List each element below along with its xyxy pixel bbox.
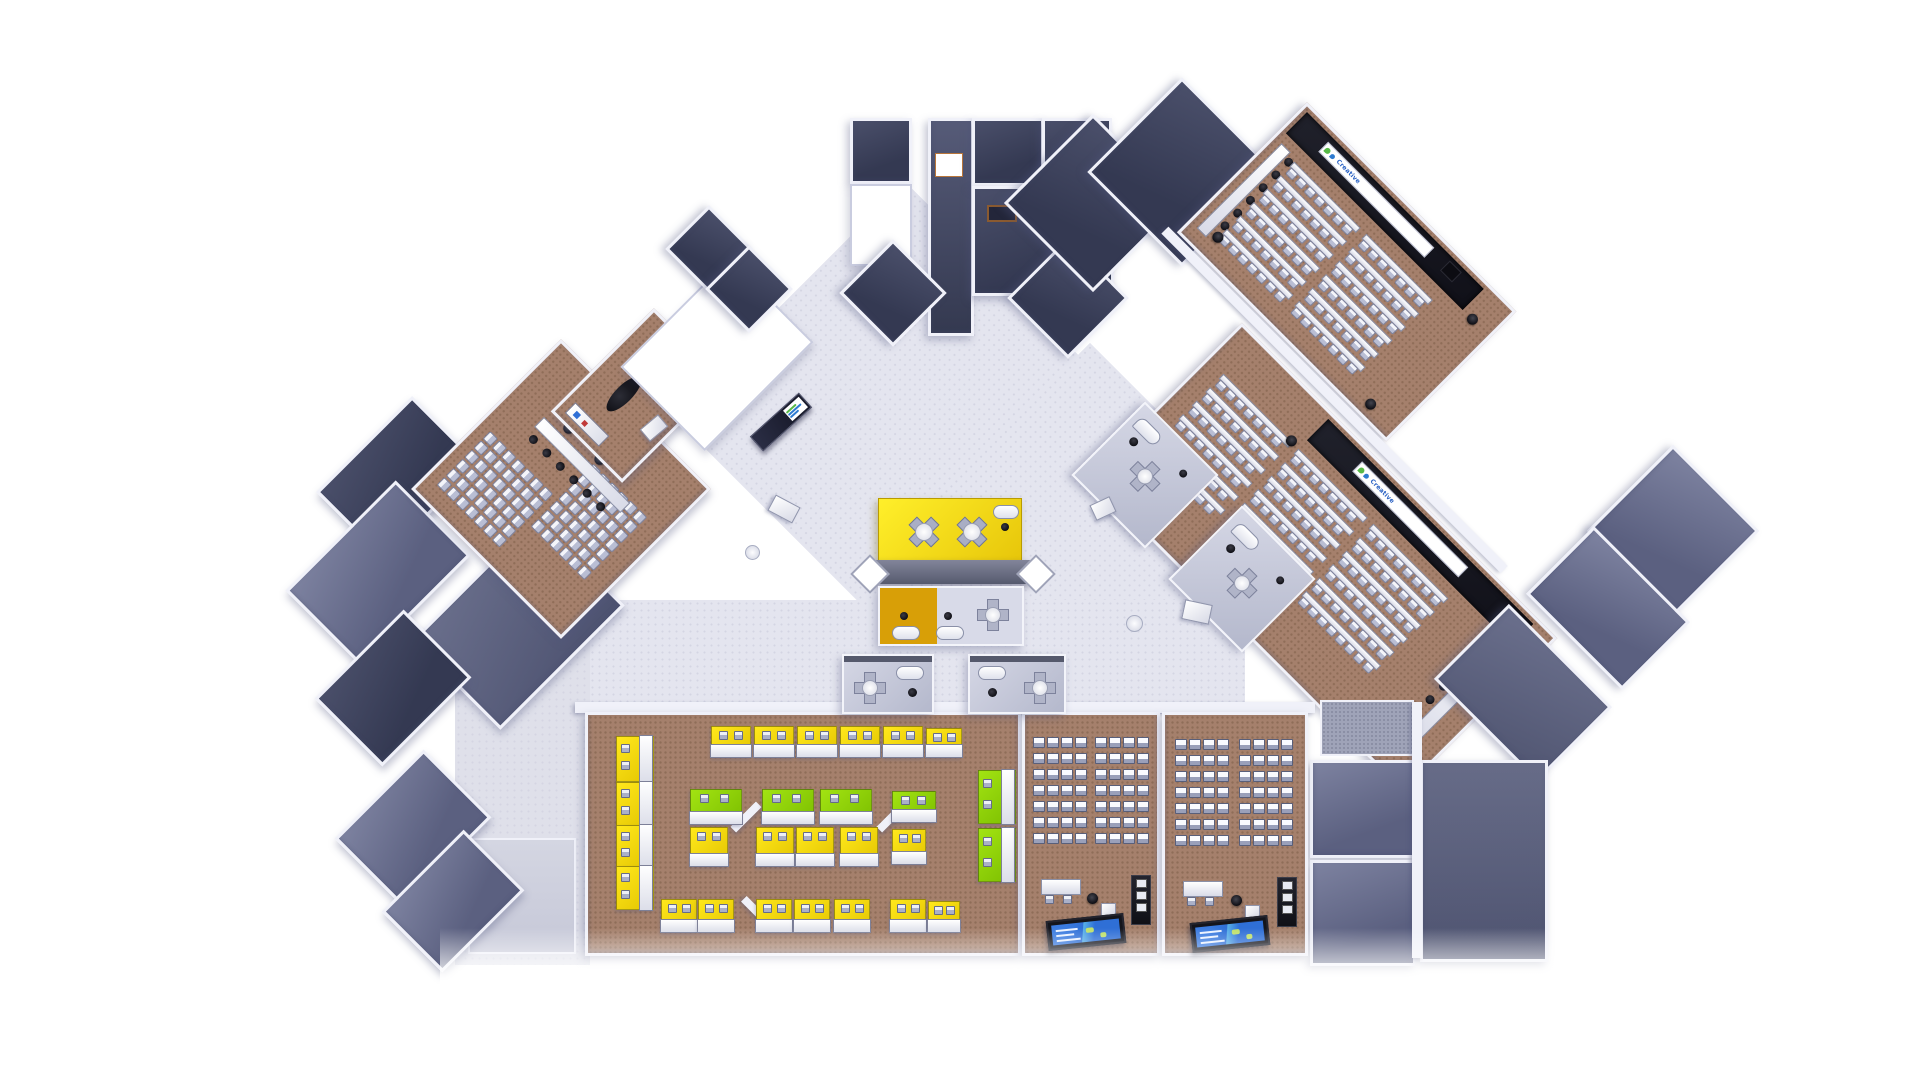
- desk: [639, 824, 653, 868]
- chair: [621, 848, 630, 857]
- student-desk: [1203, 739, 1215, 750]
- chair: [818, 832, 827, 841]
- chair: [777, 904, 786, 913]
- chair: [803, 832, 812, 841]
- chair: [540, 447, 553, 460]
- desk: [925, 744, 963, 758]
- stool: [944, 612, 952, 620]
- student-desk: [1061, 737, 1073, 748]
- student-desk: [1175, 835, 1187, 846]
- student-desk: [1033, 801, 1045, 812]
- student-desk: [1217, 787, 1229, 798]
- student-desk: [1075, 801, 1087, 812]
- class2-teacher-desk: [1183, 881, 1223, 897]
- class2-cabinet: [1277, 877, 1297, 927]
- student-desk: [1109, 737, 1121, 748]
- chair: [830, 794, 839, 803]
- desk: [639, 781, 653, 827]
- student-desk: [1123, 801, 1135, 812]
- student-desk: [1109, 817, 1121, 828]
- student-desk: [1189, 771, 1201, 782]
- br-core-corridor-wall: [1412, 702, 1422, 958]
- student-desk: [1253, 755, 1265, 766]
- student-desk: [1267, 803, 1279, 814]
- desk: [753, 744, 795, 758]
- pod-bench: [936, 626, 964, 640]
- chair: [763, 832, 772, 841]
- student-desk: [1095, 785, 1107, 796]
- student-desk: [1095, 737, 1107, 748]
- floor-spot: [1126, 615, 1143, 632]
- student-desk: [1075, 785, 1087, 796]
- student-desk: [1047, 769, 1059, 780]
- student-desk: [1109, 753, 1121, 764]
- student-desk: [1281, 771, 1293, 782]
- chair: [792, 794, 801, 803]
- x-table: [953, 513, 989, 549]
- chair: [772, 794, 781, 803]
- plus-table: [1022, 670, 1056, 704]
- class1-cabinet: [1131, 875, 1151, 925]
- counter-item-blue: [573, 411, 581, 419]
- chair: [983, 779, 992, 788]
- br-core-room-1: [1310, 760, 1416, 858]
- chair: [1205, 897, 1214, 906]
- yellow-desk-mat: [754, 726, 794, 758]
- student-desk: [1189, 739, 1201, 750]
- chair: [947, 733, 956, 742]
- student-desk: [1203, 803, 1215, 814]
- student-desk: [1047, 801, 1059, 812]
- chair: [820, 731, 829, 740]
- student-desk: [1267, 755, 1279, 766]
- green-desk-mat: [820, 789, 872, 825]
- student-desk: [1175, 787, 1187, 798]
- student-desk: [1047, 753, 1059, 764]
- student-desk: [1203, 819, 1215, 830]
- student-desk: [1123, 737, 1135, 748]
- chair: [801, 904, 810, 913]
- student-desk: [1095, 753, 1107, 764]
- pod-bench: [892, 626, 920, 640]
- canopy-bench: [993, 505, 1019, 519]
- stool: [900, 612, 908, 620]
- chair: [848, 731, 857, 740]
- chair: [912, 834, 921, 843]
- chair: [682, 904, 691, 913]
- plus-table: [1217, 556, 1268, 607]
- student-desk: [1075, 817, 1087, 828]
- yellow-desk-mat: [797, 726, 837, 758]
- student-desk: [1137, 737, 1149, 748]
- chair: [1187, 897, 1196, 906]
- desk: [839, 744, 881, 758]
- student-desk: [1175, 803, 1187, 814]
- chair: [719, 904, 728, 913]
- student-desk: [1175, 771, 1187, 782]
- student-desk: [1061, 817, 1073, 828]
- student-desk: [1203, 755, 1215, 766]
- plus-table: [852, 670, 886, 704]
- stool: [908, 688, 917, 697]
- desk: [882, 744, 924, 758]
- chair: [621, 789, 630, 798]
- chair: [705, 904, 714, 913]
- yellow-desk-mat: [883, 726, 923, 758]
- student-desk: [1267, 739, 1279, 750]
- student-desk: [1033, 753, 1045, 764]
- chair: [527, 433, 540, 446]
- chair: [841, 904, 850, 913]
- student-desk: [1095, 769, 1107, 780]
- student-desk: [1189, 819, 1201, 830]
- student-desk: [1203, 835, 1215, 846]
- student-desk: [1047, 785, 1059, 796]
- chair: [850, 794, 859, 803]
- student-desk: [1061, 769, 1073, 780]
- student-desk: [1075, 833, 1087, 844]
- student-desk: [1109, 785, 1121, 796]
- student-desk: [1123, 769, 1135, 780]
- student-desk: [1109, 833, 1121, 844]
- chair: [763, 904, 772, 913]
- student-desk: [1137, 769, 1149, 780]
- student-desk: [1253, 739, 1265, 750]
- student-desk: [1239, 771, 1251, 782]
- student-desk: [1239, 819, 1251, 830]
- desk: [891, 851, 927, 865]
- chair: [815, 904, 824, 913]
- student-desk: [1047, 737, 1059, 748]
- desk: [1001, 827, 1015, 883]
- yellow-desk-mat: [756, 827, 794, 867]
- green-desk-mat: [978, 828, 1016, 882]
- chair: [906, 731, 915, 740]
- student-desk: [1281, 787, 1293, 798]
- chair: [700, 794, 709, 803]
- student-desk: [1253, 803, 1265, 814]
- br-core-texture: [1320, 700, 1414, 756]
- student-desk: [1123, 753, 1135, 764]
- student-desk: [1123, 785, 1135, 796]
- student-desk: [1267, 835, 1279, 846]
- green-desk-mat: [892, 791, 936, 823]
- desk: [639, 735, 653, 783]
- student-desk: [1239, 755, 1251, 766]
- student-desk: [1047, 817, 1059, 828]
- study-room: [585, 712, 1021, 956]
- student-desk: [1281, 803, 1293, 814]
- floor-spot: [745, 545, 760, 560]
- chair: [621, 806, 630, 815]
- chair: [554, 460, 567, 473]
- chair: [697, 832, 706, 841]
- class1-teacher-desk: [1041, 879, 1081, 895]
- desk: [689, 811, 743, 825]
- student-desk: [1189, 803, 1201, 814]
- chair: [1045, 895, 1054, 904]
- group-pod-b: [968, 654, 1066, 714]
- floorplan-rendering: Creative Creative: [0, 0, 1920, 1080]
- student-desk: [1033, 737, 1045, 748]
- yellow-desk-mat: [711, 726, 751, 758]
- student-desk: [1217, 771, 1229, 782]
- desk: [761, 811, 815, 825]
- student-desk: [1281, 819, 1293, 830]
- yellow-desk-mat: [616, 825, 654, 867]
- student-desk: [1253, 835, 1265, 846]
- counter-item-red: [581, 420, 588, 427]
- student-desk: [1253, 787, 1265, 798]
- stool: [1127, 435, 1140, 448]
- student-desk: [1217, 739, 1229, 750]
- chair: [911, 904, 920, 913]
- chair: [668, 904, 677, 913]
- student-desk: [1123, 817, 1135, 828]
- chair: [805, 731, 814, 740]
- plus-table: [974, 596, 1010, 632]
- chair: [762, 731, 771, 740]
- student-desk: [1095, 817, 1107, 828]
- student-desk: [1061, 801, 1073, 812]
- chair: [719, 731, 728, 740]
- desk: [819, 811, 873, 825]
- yellow-desk-mat: [892, 829, 926, 865]
- chair: [862, 832, 871, 841]
- student-desk: [1137, 817, 1149, 828]
- student-desk: [1109, 801, 1121, 812]
- chair: [734, 731, 743, 740]
- x-table: [905, 513, 941, 549]
- chair: [983, 837, 992, 846]
- chair: [855, 904, 864, 913]
- yellow-desk-mat: [840, 726, 880, 758]
- student-desk: [1061, 753, 1073, 764]
- chair: [621, 873, 630, 882]
- chair: [712, 832, 721, 841]
- chair: [917, 796, 926, 805]
- stool: [988, 688, 997, 697]
- student-desk: [1095, 833, 1107, 844]
- student-desk: [1033, 833, 1045, 844]
- yellow-desk-mat: [616, 736, 654, 782]
- chair: [778, 832, 787, 841]
- student-desk: [1175, 819, 1187, 830]
- chair: [847, 832, 856, 841]
- student-desk: [1239, 835, 1251, 846]
- student-desk: [1033, 769, 1045, 780]
- chair: [621, 890, 630, 899]
- chair: [933, 733, 942, 742]
- desk: [795, 853, 835, 867]
- student-desk: [1033, 785, 1045, 796]
- student-desk: [1203, 787, 1215, 798]
- corridor-skylight: [935, 153, 963, 177]
- student-desk: [1175, 755, 1187, 766]
- student-desk: [1217, 755, 1229, 766]
- group-pod-a: [842, 654, 934, 714]
- student-desk: [1217, 819, 1229, 830]
- student-desk: [1137, 801, 1149, 812]
- student-desk: [1217, 803, 1229, 814]
- yellow-desk-mat: [616, 782, 654, 826]
- student-desk: [1095, 801, 1107, 812]
- green-desk-mat: [762, 789, 814, 825]
- stool: [1178, 468, 1189, 479]
- green-desk-mat: [978, 770, 1016, 824]
- student-desk: [1253, 771, 1265, 782]
- canopy-beam: [872, 560, 1032, 584]
- chair: [901, 796, 910, 805]
- student-desk: [1137, 833, 1149, 844]
- chair: [720, 794, 729, 803]
- core-room-1: [850, 118, 912, 184]
- student-desk: [1175, 739, 1187, 750]
- student-desk: [1109, 769, 1121, 780]
- desk: [689, 853, 729, 867]
- plus-table: [1120, 450, 1171, 501]
- student-desk: [1267, 787, 1279, 798]
- green-desk-mat: [690, 789, 742, 825]
- student-desk: [1033, 817, 1045, 828]
- stool: [1275, 575, 1286, 586]
- chair: [934, 906, 943, 915]
- student-desk: [1203, 771, 1215, 782]
- chair: [983, 858, 992, 867]
- student-desk: [1123, 833, 1135, 844]
- desk: [839, 853, 879, 867]
- student-desk: [1239, 787, 1251, 798]
- chair: [621, 744, 630, 753]
- student-desk: [1075, 737, 1087, 748]
- student-desk: [1061, 833, 1073, 844]
- yellow-desk-mat: [690, 827, 728, 867]
- desk: [1001, 769, 1015, 825]
- student-desk: [1189, 755, 1201, 766]
- office-chair: [1087, 893, 1098, 904]
- student-desk: [1217, 835, 1229, 846]
- desk: [639, 865, 653, 911]
- chair: [1063, 895, 1072, 904]
- student-desk: [1137, 785, 1149, 796]
- student-desk: [1239, 803, 1251, 814]
- chair: [897, 904, 906, 913]
- chair: [891, 731, 900, 740]
- computer-classroom-1: [1022, 712, 1160, 956]
- student-desk: [1189, 787, 1201, 798]
- chair: [899, 834, 908, 843]
- amber-pod: [878, 586, 1024, 646]
- chair: [863, 731, 872, 740]
- stool: [1001, 523, 1009, 531]
- student-desk: [1239, 739, 1251, 750]
- chair: [983, 800, 992, 809]
- yellow-canopy: [878, 498, 1022, 562]
- student-desk: [1281, 835, 1293, 846]
- chair: [621, 832, 630, 841]
- desk: [755, 853, 795, 867]
- student-desk: [1189, 835, 1201, 846]
- student-desk: [1075, 769, 1087, 780]
- student-desk: [1061, 785, 1073, 796]
- student-desk: [1137, 753, 1149, 764]
- student-desk: [1267, 819, 1279, 830]
- chair: [621, 761, 630, 770]
- student-desk: [1281, 755, 1293, 766]
- student-desk: [1047, 833, 1059, 844]
- student-desk: [1281, 739, 1293, 750]
- section-cut-fade: [440, 928, 1640, 1020]
- chair: [946, 906, 955, 915]
- desk: [710, 744, 752, 758]
- yellow-desk-mat: [840, 827, 878, 867]
- stool: [1224, 542, 1237, 555]
- pod-bench: [978, 666, 1006, 680]
- computer-classroom-2: [1162, 712, 1308, 956]
- student-desk: [1075, 753, 1087, 764]
- pod-bench: [896, 666, 924, 680]
- student-desk: [1267, 771, 1279, 782]
- yellow-desk-mat: [796, 827, 834, 867]
- student-desk: [1253, 819, 1265, 830]
- desk: [891, 809, 937, 823]
- yellow-desk-mat: [926, 728, 962, 758]
- yellow-desk-mat: [616, 866, 654, 910]
- desk: [796, 744, 838, 758]
- office-chair: [1231, 895, 1242, 906]
- chair: [777, 731, 786, 740]
